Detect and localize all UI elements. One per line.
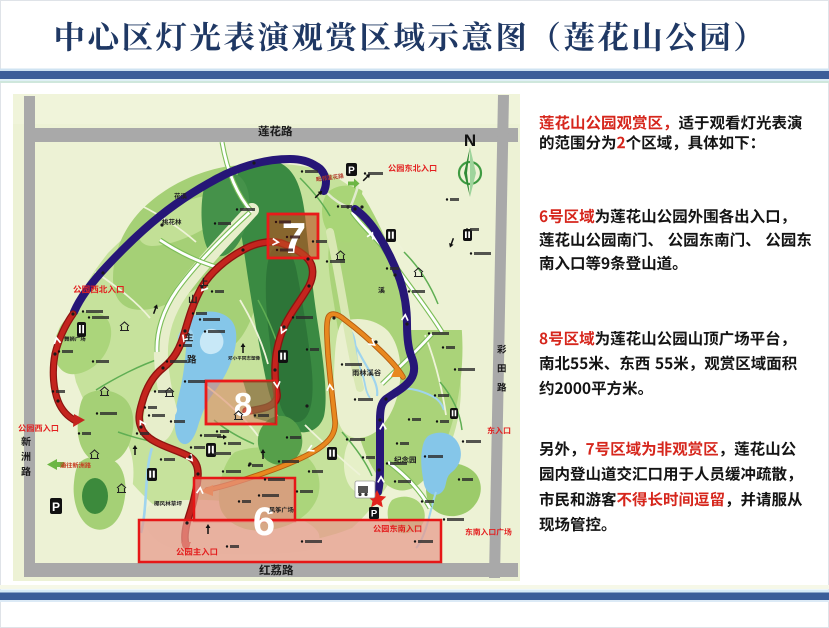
svg-text:6: 6	[253, 500, 275, 544]
svg-text:P: P	[371, 509, 378, 520]
svg-text:P: P	[348, 166, 355, 177]
svg-text:8: 8	[234, 386, 252, 423]
svg-text:N: N	[464, 131, 476, 150]
svg-text:P: P	[52, 500, 60, 514]
